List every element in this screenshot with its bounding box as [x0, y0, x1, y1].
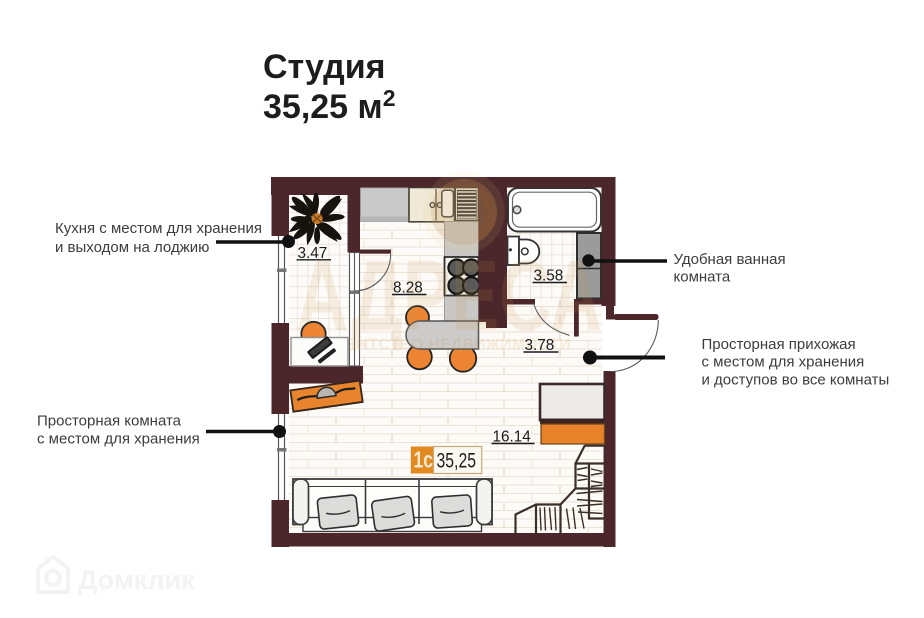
- svg-text:с местом для хранения: с местом для хранения: [37, 431, 200, 448]
- svg-text:1с: 1с: [414, 446, 434, 472]
- svg-text:35,25: 35,25: [437, 449, 477, 472]
- svg-text:комната: комната: [674, 269, 731, 286]
- svg-text:Просторная комната: Просторная комната: [37, 413, 182, 430]
- svg-text:с местом для хранения: с местом для хранения: [702, 354, 865, 371]
- svg-text:Просторная прихожая: Просторная прихожая: [702, 336, 856, 353]
- svg-text:Кухня с местом для хранения: Кухня с местом для хранения: [55, 220, 262, 237]
- svg-text:Студия: Студия: [263, 48, 385, 86]
- svg-text:Удобная ванная: Удобная ванная: [674, 251, 786, 268]
- svg-text:Домклик: Домклик: [78, 565, 195, 595]
- svg-text:и доступов во все комнаты: и доступов во все комнаты: [702, 372, 890, 389]
- svg-text:и выходом на лоджию: и выходом на лоджию: [55, 239, 209, 256]
- svg-text:35,25 м2: 35,25 м2: [263, 85, 395, 126]
- svg-text:АДРЕСА: АДРЕСА: [296, 240, 602, 352]
